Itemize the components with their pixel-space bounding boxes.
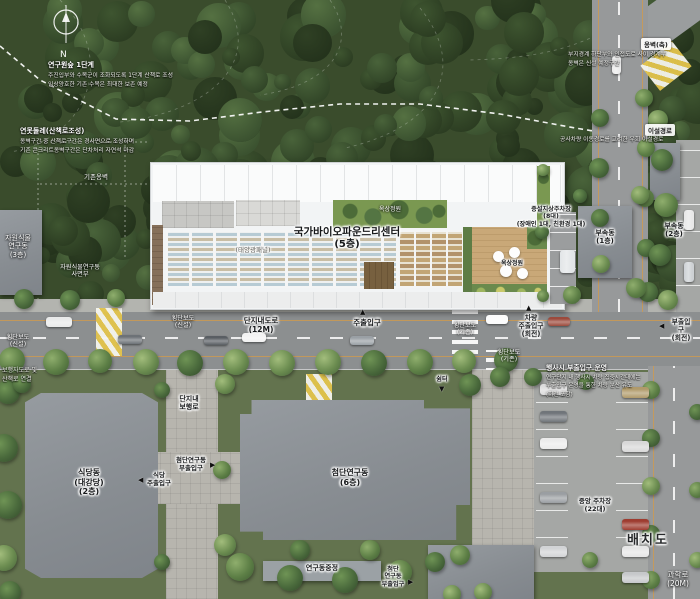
annex1-label: 부속동 (1층) — [595, 229, 614, 246]
main-building-name: 국가바이오파운드리센터 — [294, 226, 400, 239]
crosswalk-old-label-2: 횡단보도 (기존) — [498, 349, 521, 364]
car-icon — [46, 317, 72, 327]
car-icon — [622, 572, 649, 583]
car-icon — [486, 315, 508, 324]
slope-zone-label: 자원식물연구동 사면부 — [60, 264, 100, 279]
crosswalk-new-label-1: 횡단보도 (신설) — [172, 315, 195, 330]
arrow-right-icon: ▶ — [210, 462, 215, 469]
car-icon — [540, 411, 567, 422]
note5-title: 행사시 부출입구 운영 — [546, 364, 607, 373]
drawing-title: 배치도 — [627, 533, 669, 549]
car-icon — [540, 438, 567, 449]
walkway-label: 단지내 보행로 — [179, 395, 198, 412]
arrow-up-icon: ▲ — [360, 309, 365, 316]
arrow-down-icon: ▼ — [439, 386, 444, 393]
car-icon — [622, 441, 649, 452]
north-compass: N — [50, 5, 84, 61]
central-parking-label: 중앙 주차장 (22대) — [579, 498, 611, 514]
car-icon — [684, 210, 694, 230]
crosswalk-new-label-2: 횡단보도 (신설) — [7, 334, 30, 349]
note1-title: 연구원숲 1단계 — [48, 61, 94, 70]
advanced-sub-entrance-label: 첨단연구동 부출입구 — [176, 457, 206, 473]
courtyard-label: 연구동중정 — [306, 564, 338, 572]
note2-body: 옹벽구간 중 산책로구간은 경사면으로 조성하며 기존 콘크리트옹벽구간은 단차… — [20, 138, 134, 155]
compass-needle-icon — [62, 12, 70, 22]
existing-wall-label: 기존옹벽 — [84, 174, 108, 182]
main-building-floors: (5층) — [334, 239, 359, 251]
arrow-right-icon: ▶ — [408, 579, 413, 586]
car-icon — [350, 336, 374, 345]
shelter-label: 쉼터 — [436, 376, 447, 383]
vehicle-main-entrance-label: 차량 주출입구 (회전) — [518, 314, 543, 338]
site-plan-canvas: N 연구원숲 1단계 주진입부와 수목군이 조화되도록 1단계 산책로 조성 임… — [0, 0, 700, 599]
car-icon — [684, 262, 694, 282]
cafeteria-entrance-label: 식당 주출입구 — [147, 472, 171, 488]
car-icon — [242, 333, 266, 342]
note5-body: 연구단지 내 행사시 차량 집중시간대에는 부출입구 운영을 통한 차량 분산 … — [546, 374, 641, 399]
car-icon — [540, 546, 567, 557]
annex2-label: 부속동 (2층) — [664, 222, 683, 239]
cafeteria-building-label: 식당동 (대강당) (2층) — [74, 468, 103, 497]
main-entrance-label: 주출입구 — [353, 318, 381, 327]
advanced-lab-label: 첨단연구동 (6층) — [332, 468, 369, 487]
solar-panel-label: (태양광패널) — [236, 247, 271, 255]
compass-n-letter: N — [60, 50, 67, 60]
car-icon — [548, 317, 570, 326]
added-parking-label: 증설지상주차장 (8대) (장애인 1대, 친환경 1대) — [517, 206, 586, 228]
crosswalk-old-label-1: 횡단보도 (기존) — [454, 322, 477, 337]
note3-title: 옹벽(축) — [641, 38, 671, 50]
advanced-sub-entrance-label-2: 첨단 연구동 부출입구 — [382, 566, 405, 588]
roof-garden-label: 옥상정원 — [379, 206, 401, 213]
car-icon — [622, 519, 649, 530]
arrow-left-icon: ◀ — [659, 323, 664, 330]
car-icon — [560, 250, 575, 273]
note3-body: 부지경계 하단부와 인접도로 사이 경계부 옹벽은 신설 예정구간 — [568, 51, 666, 68]
car-icon — [118, 335, 142, 344]
plant-lab-label: 자원식물 연구동 (3층) — [5, 234, 31, 259]
note2-title: 연못둘레(산책로조성) — [20, 127, 84, 136]
arrow-left-icon: ◀ — [138, 477, 143, 484]
sub-entrance-label: 부출입구 (회전) — [672, 318, 691, 342]
science-road-label: 과학로 (20M) — [667, 570, 689, 588]
note4-title: 이설경로 — [645, 124, 675, 136]
car-icon — [540, 492, 567, 503]
note4-body: 공사차량 이동경로를 고려한 우회 이설경로 — [560, 136, 663, 145]
note6-text: 보행자도로 및 산책로 연결 — [2, 366, 37, 384]
car-icon — [204, 336, 228, 345]
complex-road-label: 단지내도로 (12M) — [244, 316, 279, 334]
deck-garden-label: 옥상정원 — [501, 260, 523, 267]
note1-body: 주진입부와 수목군이 조화되도록 1단계 산책로 조성 임상양호한 기존 수목은… — [48, 72, 173, 89]
arrow-up-icon: ▲ — [526, 305, 531, 312]
